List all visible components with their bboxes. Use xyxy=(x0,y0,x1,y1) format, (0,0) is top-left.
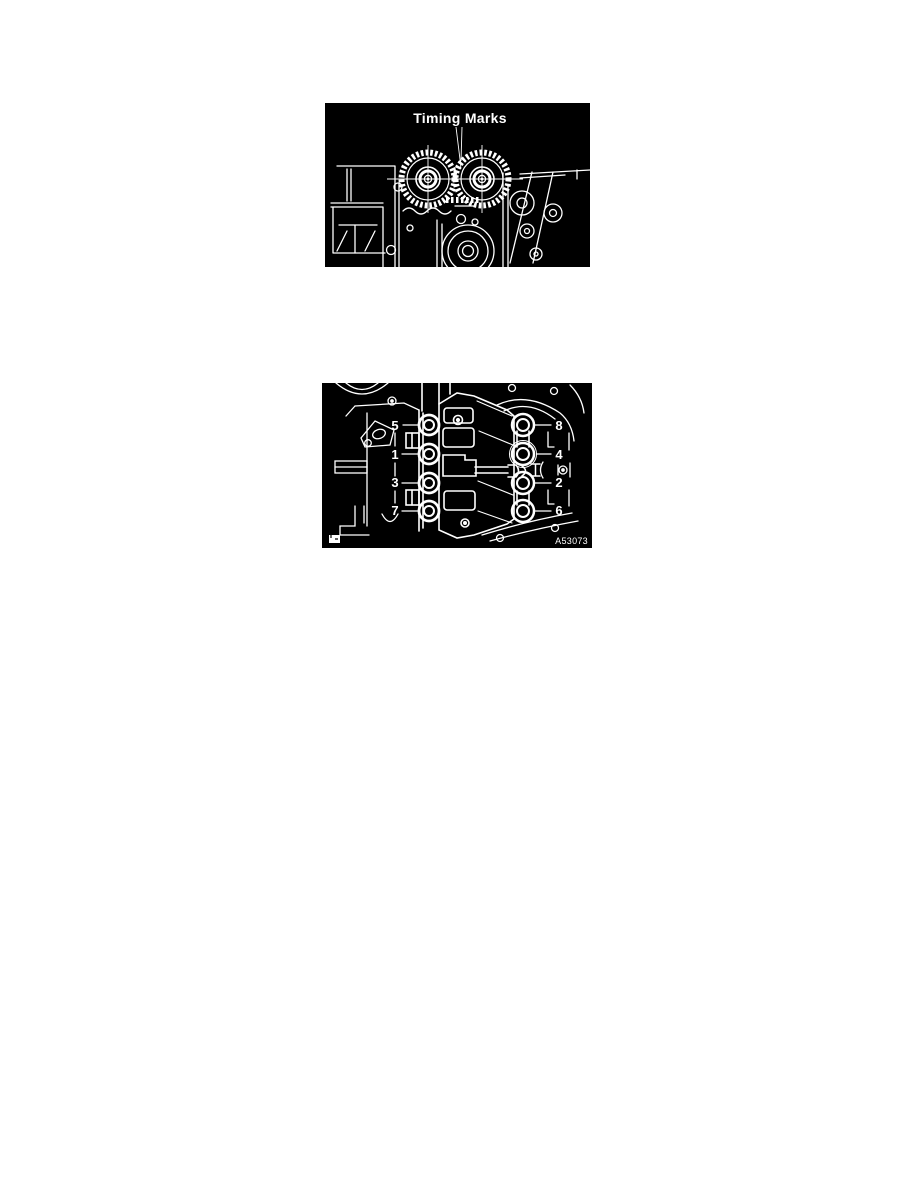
bolt-column-left xyxy=(419,415,439,521)
bolt-label-7: 7 xyxy=(391,503,398,518)
bolt-label-6: 6 xyxy=(555,503,562,518)
bolt-sequence-drawing: 5 1 3 7 8 4 2 6 A53073 xyxy=(322,383,592,548)
bolt-7 xyxy=(419,501,439,521)
figure-bolt-sequence: 5 1 3 7 8 4 2 6 A53073 xyxy=(322,383,592,548)
figure-timing-marks: Timing Marks xyxy=(325,103,590,267)
bolt-3 xyxy=(419,473,439,493)
bolt-label-2: 2 xyxy=(555,475,562,490)
logo-glyph xyxy=(329,535,340,543)
bolt-label-3: 3 xyxy=(391,475,398,490)
bolt-label-5: 5 xyxy=(391,418,398,433)
bolt-1 xyxy=(419,444,439,464)
bolt-label-4: 4 xyxy=(555,447,563,462)
cylinder-head-outline-right xyxy=(503,170,590,267)
timing-marks-label: Timing Marks xyxy=(413,110,507,126)
bolt-5 xyxy=(419,415,439,435)
manual-page: Timing Marks xyxy=(0,0,918,1188)
bolt-label-1: 1 xyxy=(391,447,398,462)
chain-cover-boss xyxy=(442,225,494,267)
engine-casting-top-left xyxy=(335,383,419,535)
bolt-6 xyxy=(512,500,534,522)
bolt-label-8: 8 xyxy=(555,418,562,433)
figure-code: A53073 xyxy=(555,536,588,546)
bolt-8 xyxy=(512,414,534,436)
timing-marks-drawing: Timing Marks xyxy=(325,103,590,267)
